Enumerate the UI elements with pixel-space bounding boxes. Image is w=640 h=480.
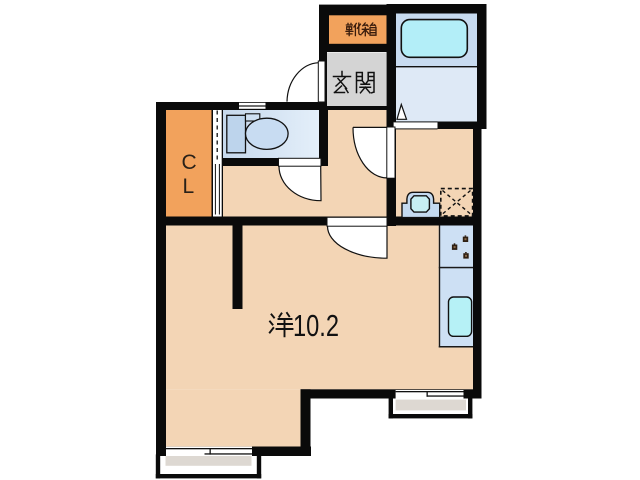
svg-text:10.2: 10.2	[293, 308, 339, 343]
svg-text:C: C	[182, 151, 197, 174]
svg-text:L: L	[183, 175, 195, 198]
